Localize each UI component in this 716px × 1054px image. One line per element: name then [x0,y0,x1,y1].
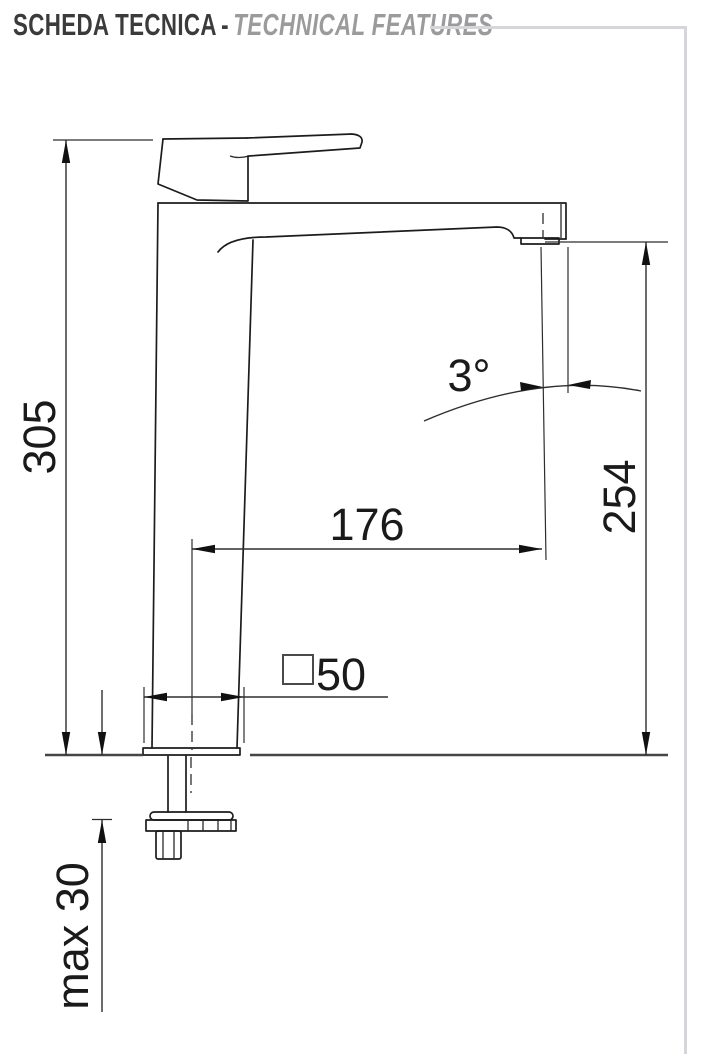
faucet-spout [158,203,566,252]
washer [150,812,233,820]
arrow-left-icon [568,380,591,389]
arrow-right-icon [221,693,244,701]
dimension-label-50: 50 [316,649,366,700]
arrow-up-icon [98,820,106,843]
dimension-label-angle: 3° [447,350,490,401]
dimension-outlet-angle: 3° [424,247,641,421]
technical-drawing-canvas: 305 254 176 3° [0,0,716,1054]
dimension-label-176: 176 [329,499,404,550]
dimension-deck-thickness: max 30 [47,690,112,1012]
datasheet-page: SCHEDA TECNICA-TECHNICAL FEATURES [0,0,716,1054]
arrow-left-icon [192,545,215,553]
dimension-label-max30: max 30 [47,862,98,1010]
dimension-base-square: 50 [144,649,388,743]
arrow-up-icon [62,140,70,163]
dimension-label-254: 254 [594,459,645,534]
arrow-down-icon [98,732,106,755]
locknut [146,820,236,831]
arrow-left-icon [144,693,167,701]
arrow-down-icon [62,732,70,755]
dimension-total-height: 305 [14,140,153,755]
hex-nut [156,831,181,859]
dimension-label-305: 305 [14,399,65,474]
arrow-down-icon [642,732,650,755]
faucet-drawing [45,134,668,859]
fixing-assembly [146,714,236,859]
arrow-up-icon [642,242,650,265]
faucet-handle [158,134,362,201]
faucet-body [143,203,253,755]
square-symbol-icon [283,655,313,684]
dimension-outlet-height: 254 [545,242,668,755]
arrow-right-icon [519,545,542,553]
